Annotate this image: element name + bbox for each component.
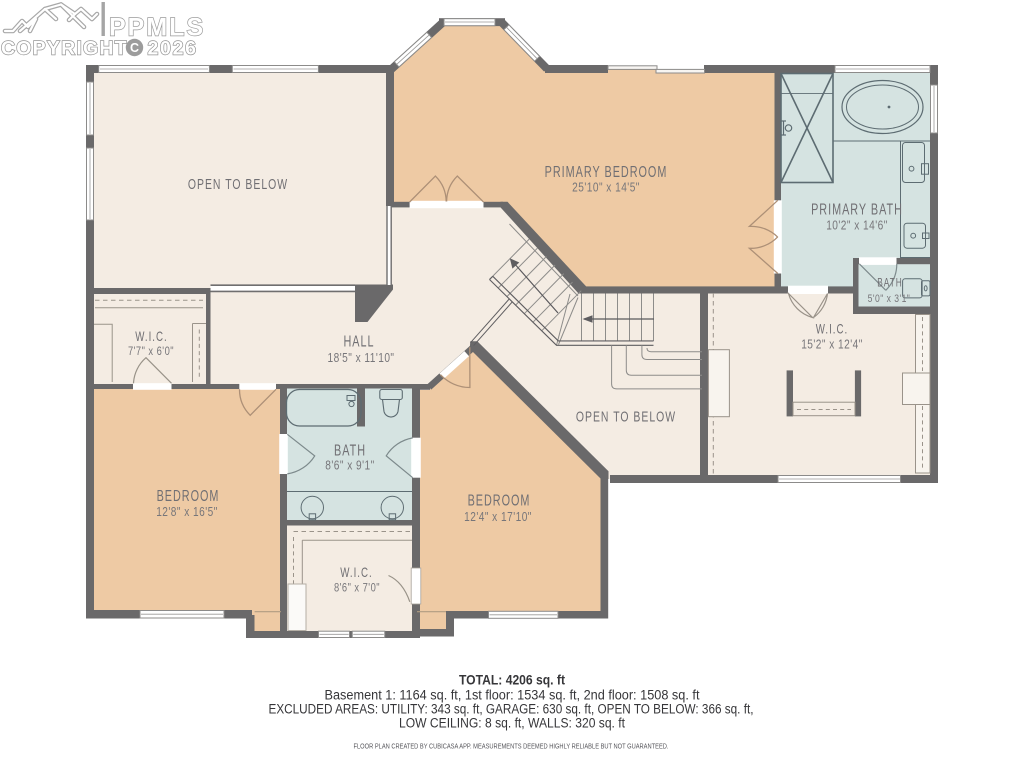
svg-text:W.I.C.: W.I.C. xyxy=(816,322,848,337)
svg-text:LOW CEILING: 8 sq. ft, WALLS:: LOW CEILING: 8 sq. ft, WALLS: 320 sq. ft xyxy=(399,716,625,731)
svg-text:COPYRIGHT: COPYRIGHT xyxy=(1,38,128,60)
svg-text:BATH: BATH xyxy=(877,277,903,290)
svg-text:FLOOR PLAN CREATED BY CUBICASA: FLOOR PLAN CREATED BY CUBICASA APP. MEAS… xyxy=(354,741,669,750)
svg-text:8'6" x 9'1": 8'6" x 9'1" xyxy=(325,458,374,472)
svg-text:7'7" x 6'0": 7'7" x 6'0" xyxy=(128,345,174,358)
svg-text:12'4" x 17'10": 12'4" x 17'10" xyxy=(464,510,532,524)
svg-text:C: C xyxy=(130,41,139,55)
svg-text:8'6" x 7'0": 8'6" x 7'0" xyxy=(334,581,380,594)
svg-text:BEDROOM: BEDROOM xyxy=(157,487,220,504)
svg-text:EXCLUDED AREAS: UTILITY: 343 s: EXCLUDED AREAS: UTILITY: 343 sq. ft, GAR… xyxy=(269,702,754,717)
svg-text:18'5" x 11'10": 18'5" x 11'10" xyxy=(328,351,395,365)
svg-text:W.I.C.: W.I.C. xyxy=(340,566,372,581)
svg-text:10'2" x 14'6": 10'2" x 14'6" xyxy=(826,218,888,232)
svg-text:PRIMARY BATH: PRIMARY BATH xyxy=(811,201,903,218)
svg-text:BEDROOM: BEDROOM xyxy=(468,492,531,509)
svg-text:W.I.C.: W.I.C. xyxy=(135,330,167,345)
svg-text:2026: 2026 xyxy=(148,38,198,60)
svg-text:Basement 1: 1164 sq. ft, 1st f: Basement 1: 1164 sq. ft, 1st floor: 1534… xyxy=(325,688,700,703)
svg-text:OPEN TO BELOW: OPEN TO BELOW xyxy=(576,409,676,425)
svg-text:HALL: HALL xyxy=(343,333,374,350)
svg-text:TOTAL: 4206 sq. ft: TOTAL: 4206 sq. ft xyxy=(459,672,565,688)
svg-text:OPEN TO BELOW: OPEN TO BELOW xyxy=(188,176,288,192)
svg-text:12'8" x 16'5": 12'8" x 16'5" xyxy=(156,505,218,519)
svg-text:PRIMARY BEDROOM: PRIMARY BEDROOM xyxy=(545,163,668,180)
svg-text:BATH: BATH xyxy=(334,442,366,459)
svg-text:5'0" x 3'1": 5'0" x 3'1" xyxy=(868,293,911,305)
svg-text:25'10" x 14'5": 25'10" x 14'5" xyxy=(572,180,640,194)
svg-text:15'2" x 12'4": 15'2" x 12'4" xyxy=(801,337,863,351)
